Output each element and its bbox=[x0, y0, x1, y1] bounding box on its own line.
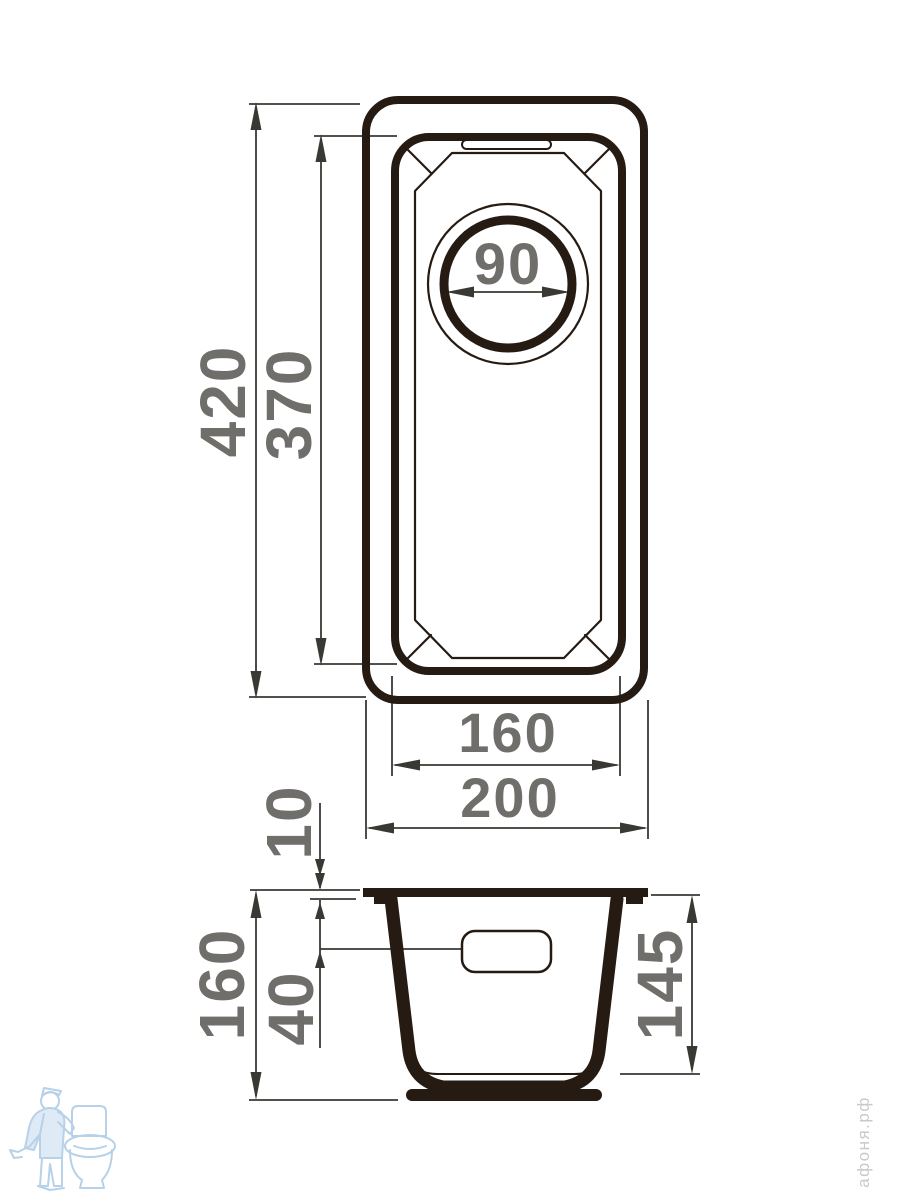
top-view bbox=[366, 100, 644, 700]
overflow-hole-side bbox=[462, 931, 551, 972]
sink-technical-drawing: 420 370 90 160 200 10 160 40 145 афоня.р… bbox=[0, 0, 900, 1200]
label-145: 145 bbox=[624, 928, 696, 1041]
label-200: 200 bbox=[460, 766, 559, 829]
label-40: 40 bbox=[255, 970, 327, 1045]
rim-bar bbox=[363, 888, 648, 897]
bowl-walls bbox=[391, 899, 617, 1087]
label-420: 420 bbox=[187, 345, 259, 458]
drawing-svg: 420 370 90 160 200 10 160 40 145 афоня.р… bbox=[0, 0, 900, 1200]
overflow-slot-top bbox=[462, 140, 551, 149]
label-370: 370 bbox=[253, 348, 325, 461]
side-section-view bbox=[363, 888, 648, 1095]
label-160-side: 160 bbox=[186, 928, 258, 1041]
brand-watermark-text: афоня.рф bbox=[854, 1096, 873, 1188]
plumber-with-toilet-icon bbox=[10, 1088, 115, 1190]
label-160-top: 160 bbox=[458, 701, 557, 764]
label-90: 90 bbox=[474, 232, 543, 297]
dim-bowl-length-370 bbox=[314, 134, 397, 666]
label-10: 10 bbox=[253, 784, 325, 859]
dim-overflow-offset-40 bbox=[315, 949, 462, 968]
